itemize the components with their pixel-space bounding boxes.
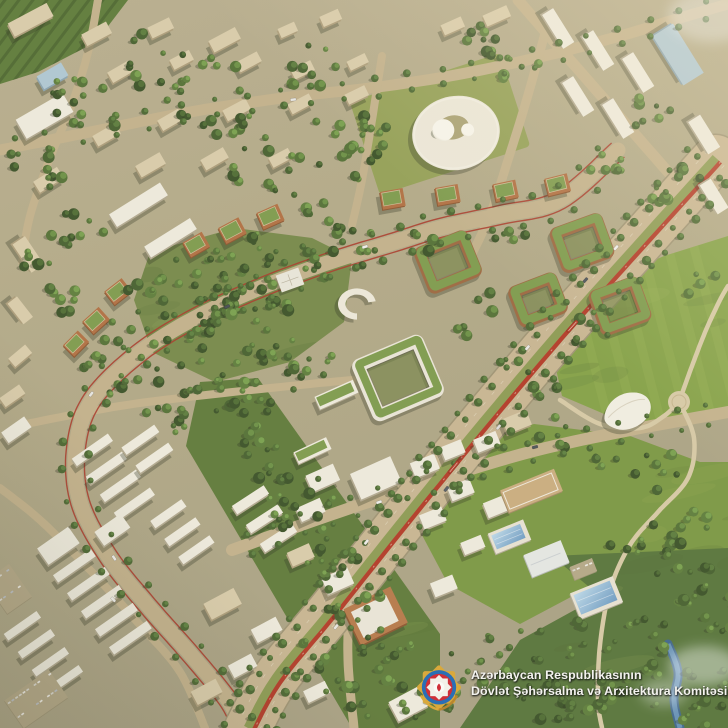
aerial-render-stage: Azərbaycan Respublikasının Dövlət Şəhərs…	[0, 0, 728, 728]
watermark-title: Azərbaycan Respublikasının	[471, 668, 727, 684]
aerial-city-render	[0, 0, 728, 728]
azerbaijan-state-emblem-icon	[414, 662, 464, 716]
watermark-subtitle: Dövlət Şəhərsalma və Arxitektura Komitəs…	[471, 684, 727, 700]
atmosphere-layer	[0, 0, 728, 728]
watermark-text: Azərbaycan Respublikasının Dövlət Şəhərs…	[471, 662, 727, 699]
watermark: Azərbaycan Respublikasının Dövlət Şəhərs…	[414, 662, 727, 716]
